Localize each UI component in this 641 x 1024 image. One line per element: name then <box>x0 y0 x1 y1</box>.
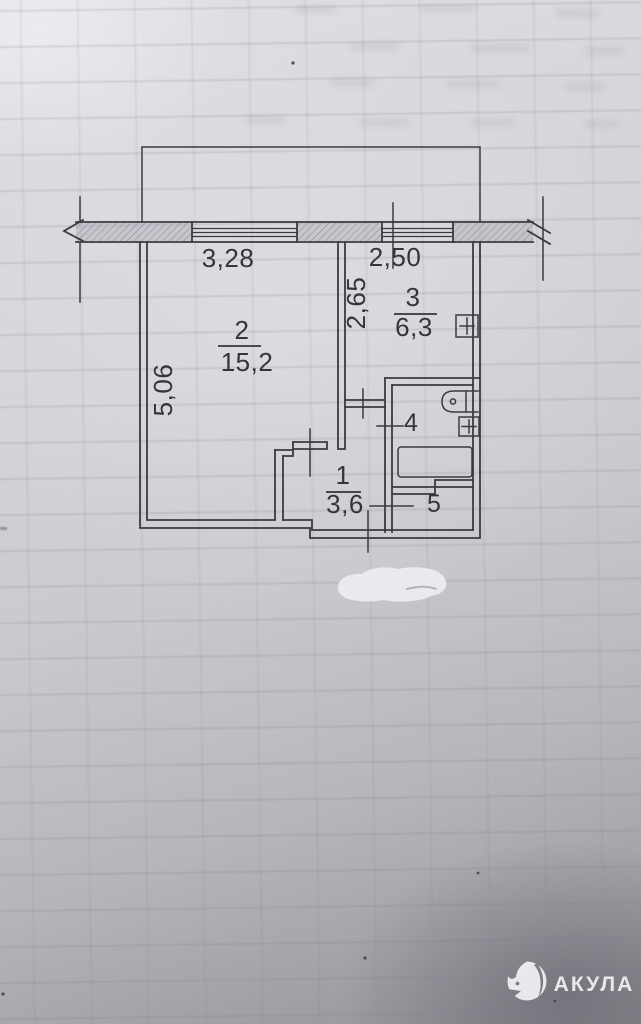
kitchen-vent-shaft <box>456 315 478 337</box>
interior-partitions <box>147 242 480 532</box>
room-number-living: 2 <box>235 315 250 345</box>
dimension-kitchen-depth: 2,65 <box>341 277 371 330</box>
scanned-floor-plan-photo: 3,28 2,50 2,65 5,06 2 15,2 3 6,3 1 3,6 4 <box>0 0 641 1024</box>
correction-fluid-blob <box>338 567 446 601</box>
window-symbol-left <box>192 229 297 237</box>
dimension-labels: 3,28 2,50 2,65 5,06 <box>148 242 421 416</box>
bathtub-icon <box>398 447 472 477</box>
room-labels: 2 15,2 3 6,3 1 3,6 4 5 <box>218 282 441 519</box>
wall-hatching <box>76 223 192 241</box>
dimension-window-left: 3,28 <box>202 243 255 273</box>
room-number-hall: 1 <box>336 460 351 490</box>
room-label-hall: 1 3,6 <box>326 460 364 519</box>
room-area-living: 15,2 <box>221 347 274 377</box>
room-label-living: 2 15,2 <box>218 315 273 377</box>
room-area-hall: 3,6 <box>326 489 364 519</box>
living-room-partition <box>338 242 345 449</box>
room-label-kitchen: 3 6,3 <box>394 282 437 342</box>
corridor-kitchen-wall <box>345 400 385 407</box>
floor-plan-drawing: 3,28 2,50 2,65 5,06 2 15,2 3 6,3 1 3,6 4 <box>0 0 641 1024</box>
wall-hatching <box>453 223 533 241</box>
dimension-window-right: 2,50 <box>369 242 422 272</box>
room-number-bathroom: 4 <box>404 409 418 437</box>
exterior-wall-band <box>64 197 550 302</box>
dimension-living-depth: 5,06 <box>148 364 178 417</box>
room-number-storage: 5 <box>427 490 441 518</box>
bathroom-vent-shaft <box>459 417 479 436</box>
bathroom-top-wall <box>385 378 480 385</box>
wall-hatching <box>297 223 382 241</box>
balcony-outline <box>142 147 480 222</box>
watermark: АКУЛА <box>508 962 635 1001</box>
paper-specks <box>1 61 556 1002</box>
watermark-brand: АКУЛА <box>554 973 635 996</box>
plus-icon <box>460 318 474 334</box>
room-number-kitchen: 3 <box>406 282 421 312</box>
room-area-kitchen: 6,3 <box>395 312 433 342</box>
shark-logo-icon <box>508 962 547 1001</box>
bathroom-left-wall <box>385 378 392 532</box>
